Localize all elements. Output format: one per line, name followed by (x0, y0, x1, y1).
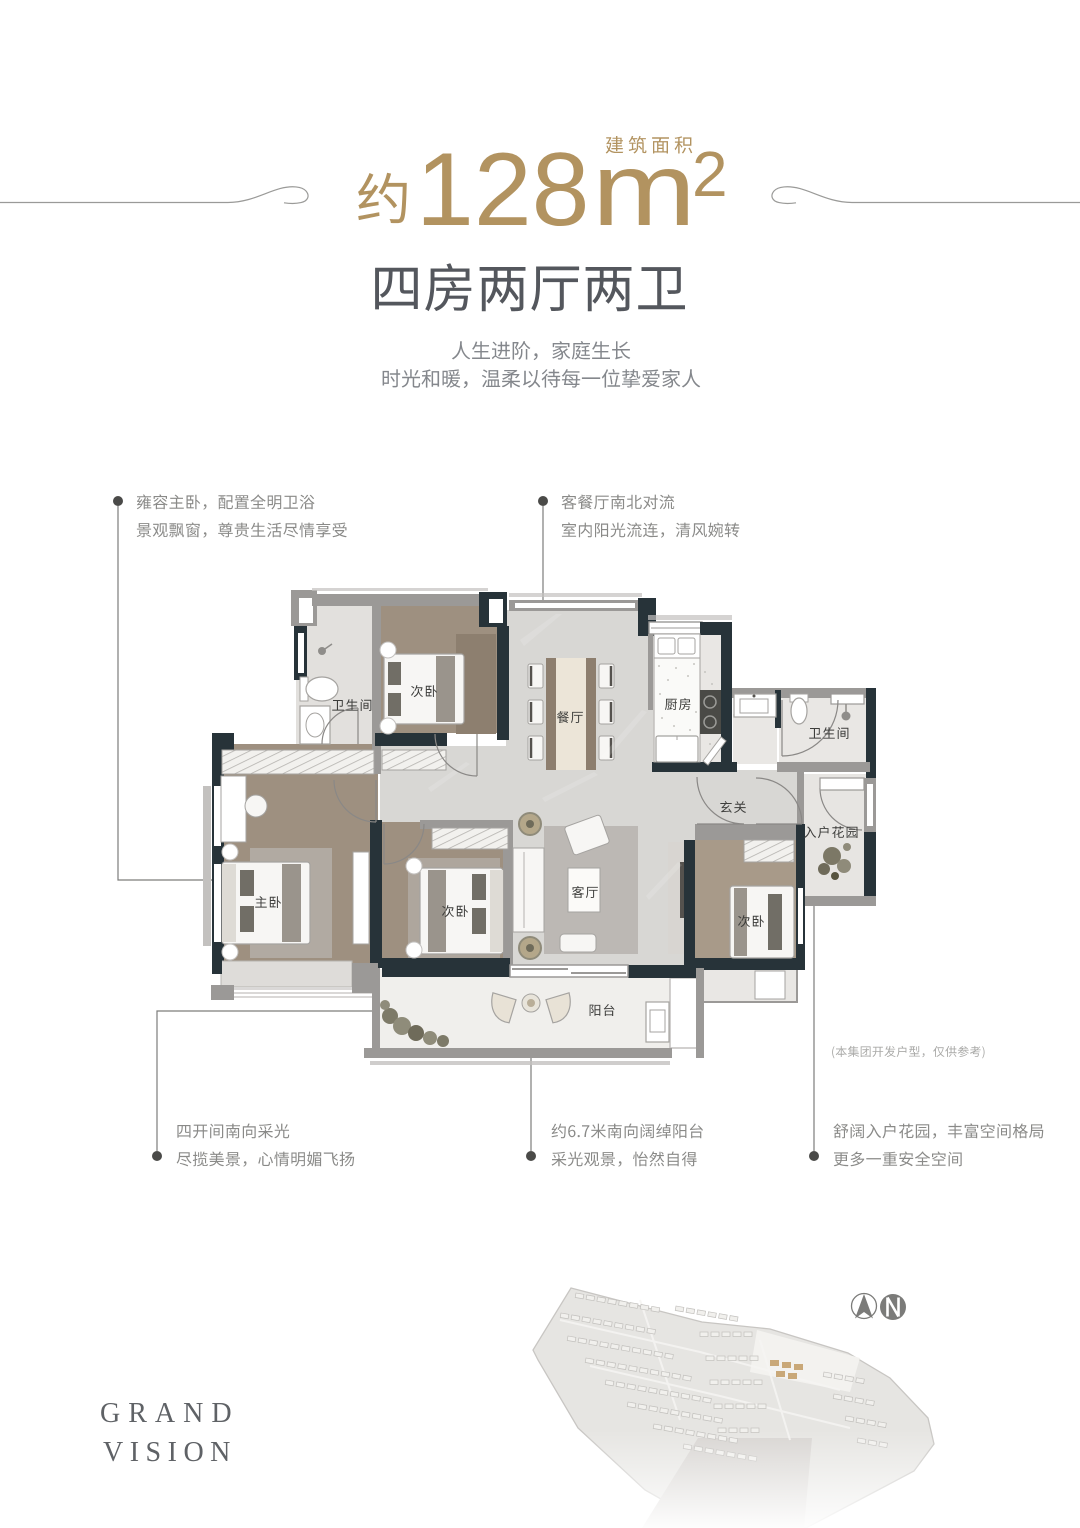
svg-text:m: m (592, 132, 696, 248)
svg-text:128: 128 (416, 132, 590, 248)
svg-text:2: 2 (692, 138, 728, 210)
